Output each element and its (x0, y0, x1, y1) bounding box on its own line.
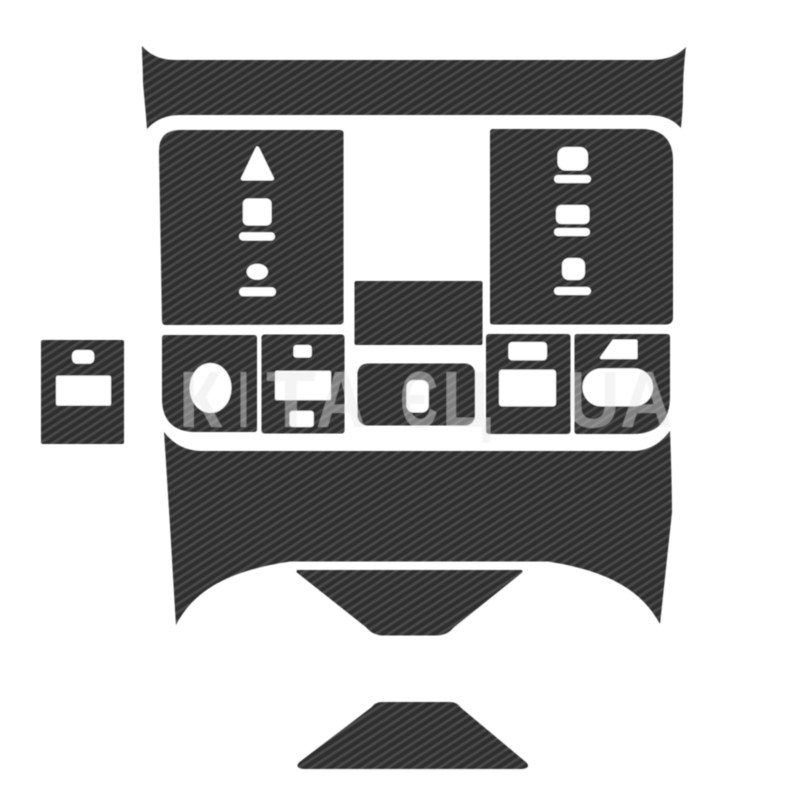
svg-text:U: U (566, 355, 620, 444)
svg-text:Ц: Ц (442, 355, 491, 444)
svg-text:К: К (179, 355, 222, 444)
svg-text:Є: Є (400, 355, 438, 444)
svg-text:І: І (238, 355, 249, 444)
svg-text:А: А (316, 355, 366, 444)
svg-text:Т: Т (266, 355, 316, 444)
svg-text:А: А (620, 355, 673, 444)
